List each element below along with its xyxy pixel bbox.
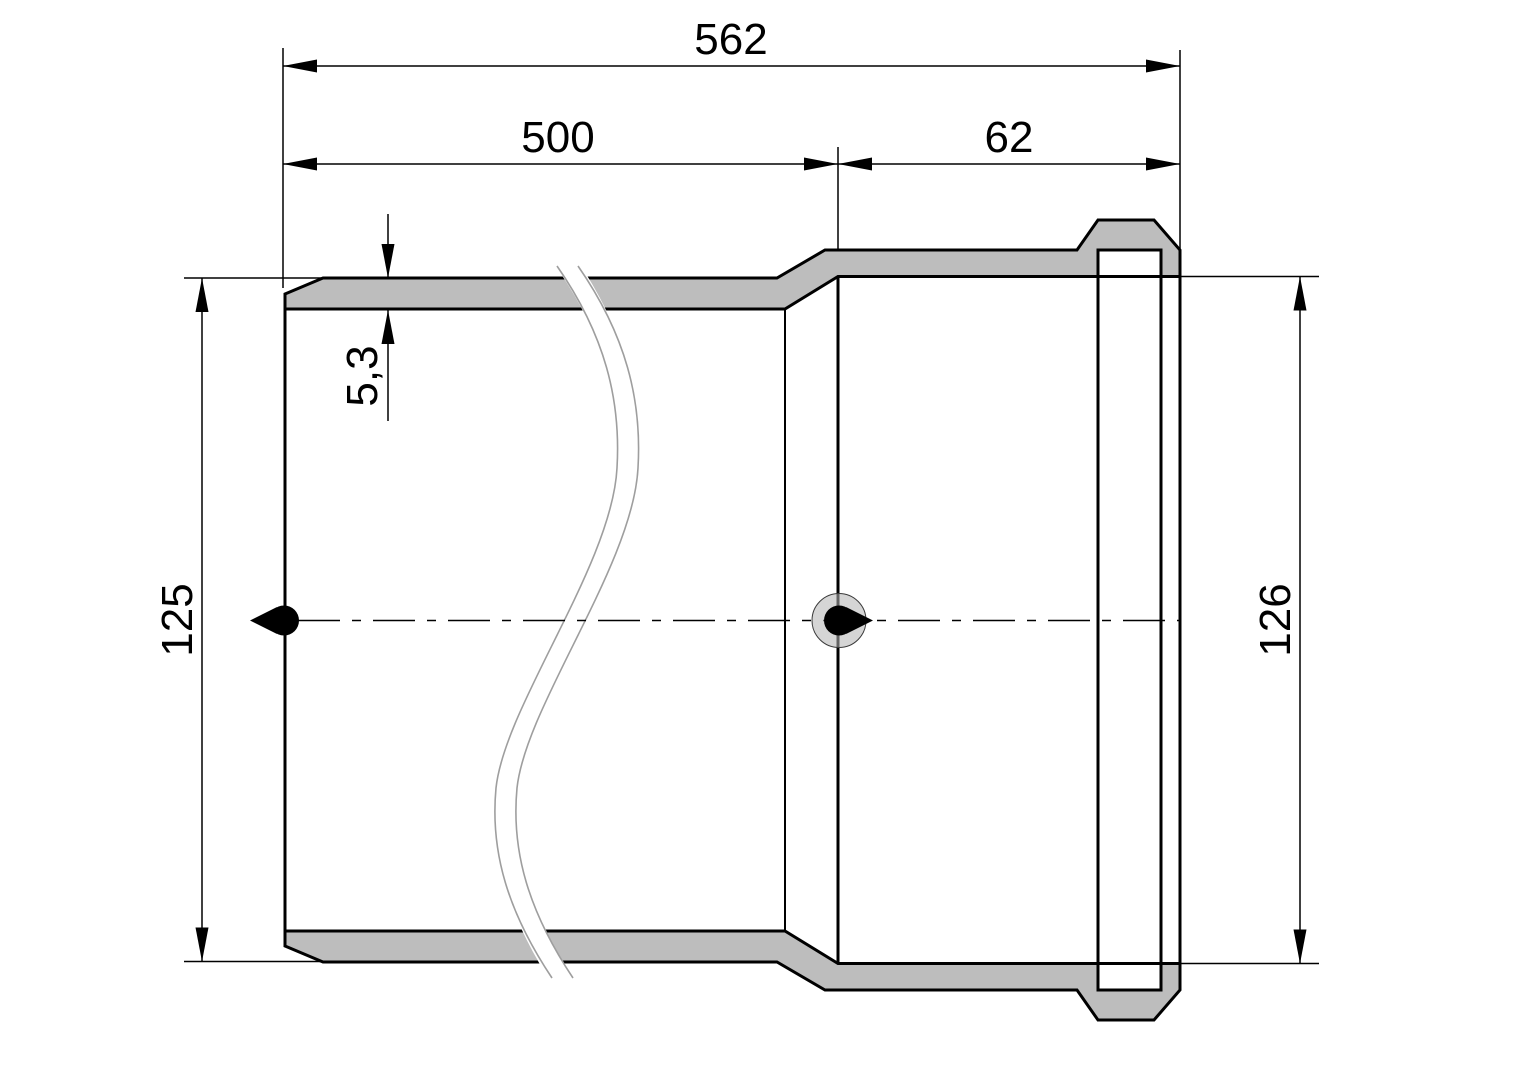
arrowhead-icon xyxy=(1146,158,1180,171)
overall-length-label: 562 xyxy=(694,15,767,64)
dimension-pipe-length: 500 xyxy=(283,113,838,249)
arrowhead-icon xyxy=(1294,930,1307,964)
socket-length-label: 62 xyxy=(985,113,1034,162)
break-line xyxy=(495,264,639,980)
arrowhead-icon xyxy=(1294,277,1307,311)
socket-inner-diameter-label: 126 xyxy=(1251,583,1300,656)
connection-point-right xyxy=(812,594,873,648)
connection-point-left xyxy=(250,606,299,636)
arrowhead-icon xyxy=(196,278,209,312)
pipe-wall-bottom xyxy=(285,931,1180,1020)
arrowhead-icon xyxy=(382,244,395,278)
pipe-length-label: 500 xyxy=(521,113,594,162)
dimension-wall-thickness: 5,3 xyxy=(338,214,395,421)
wall-thickness-label: 5,3 xyxy=(338,345,387,406)
drawing-canvas: 562 500 62 5,3 125 126 xyxy=(0,0,1528,1080)
arrowhead-icon xyxy=(196,928,209,962)
arrowhead-icon xyxy=(283,158,317,171)
arrowhead-icon xyxy=(382,310,395,344)
outer-diameter-label: 125 xyxy=(153,583,202,656)
dimension-socket-inner-diameter: 126 xyxy=(1180,277,1319,964)
pipe-wall-top xyxy=(285,220,1180,309)
arrowhead-icon xyxy=(1146,60,1180,73)
arrowhead-icon xyxy=(838,158,872,171)
pipe-technical-drawing: 562 500 62 5,3 125 126 xyxy=(0,0,1528,1080)
arrowhead-icon xyxy=(283,60,317,73)
dimension-socket-length: 62 xyxy=(838,113,1180,171)
arrowhead-icon xyxy=(804,158,838,171)
dimension-overall-length: 562 xyxy=(283,15,1180,288)
